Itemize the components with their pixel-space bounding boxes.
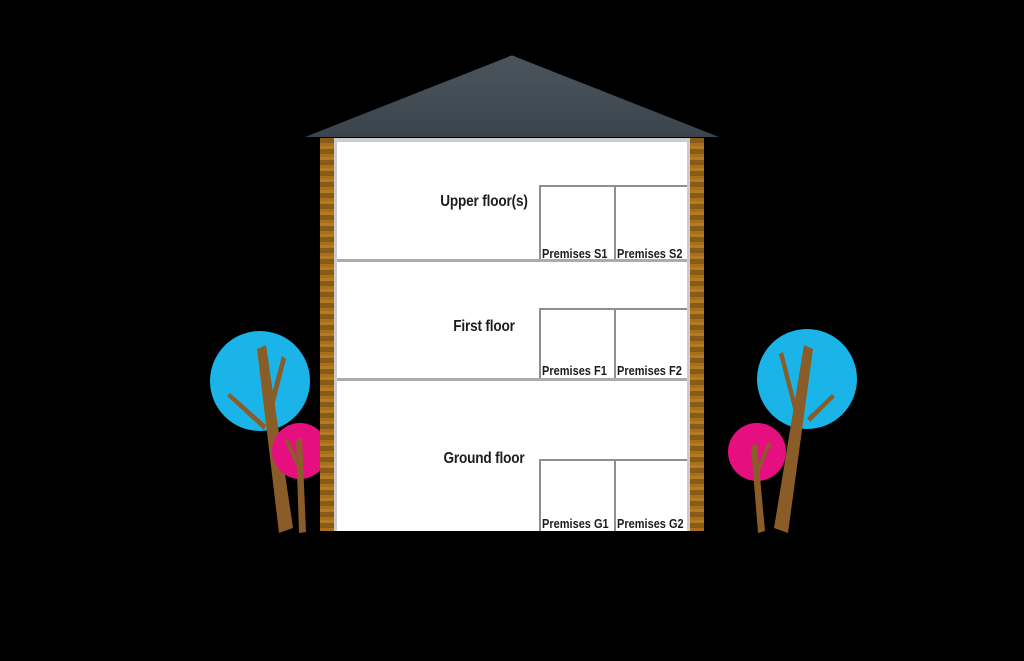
premises-cell: Premises S2	[614, 187, 689, 261]
premises-label: Premises F2	[617, 364, 682, 378]
premises-cell: Premises G1	[541, 461, 614, 531]
premises-label: Premises G2	[617, 517, 684, 531]
floor-divider	[334, 259, 690, 262]
trees-right-group	[684, 328, 859, 538]
premises-cell: Premises F1	[541, 310, 614, 378]
brick-wall-right	[690, 138, 704, 531]
building-interior: Upper floor(s) Premises S1 Premises S2 F…	[334, 138, 690, 531]
building-cross-section-diagram: Upper floor(s) Premises S1 Premises S2 F…	[0, 0, 1024, 661]
premises-cell: Premises G2	[614, 461, 689, 531]
roof-icon	[303, 53, 721, 139]
premises-box-first: Premises F1 Premises F2	[539, 308, 690, 378]
premises-label: Premises F1	[542, 364, 607, 378]
premises-cell: Premises S1	[541, 187, 614, 261]
floor-divider	[334, 378, 690, 381]
brick-wall-left	[320, 138, 334, 531]
premises-box-upper: Premises S1 Premises S2	[539, 185, 690, 261]
premises-label: Premises G1	[542, 517, 609, 531]
premises-box-ground: Premises G1 Premises G2	[539, 459, 690, 531]
premises-cell: Premises F2	[614, 310, 689, 378]
